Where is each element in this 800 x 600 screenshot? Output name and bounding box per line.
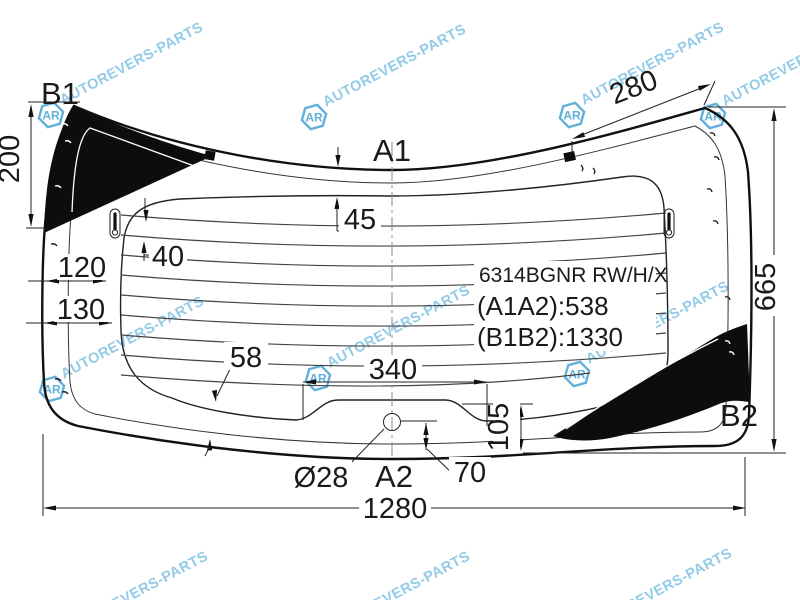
ar-logo-letters: AR	[563, 109, 581, 123]
watermark-text: AUTOREVERS-PARTS	[320, 21, 469, 110]
watermark-text: AUTOREVERS-PARTS	[719, 20, 800, 109]
marker-square-left	[204, 150, 215, 161]
technical-drawing-page: ARAUTOREVERS-PARTSARAUTOREVERS-PARTSARAU…	[0, 0, 800, 600]
dim-45: 45	[344, 204, 376, 236]
dist-b1b2: (B1B2):1330	[477, 322, 623, 352]
ref-a2-label: A2	[375, 459, 413, 494]
rear-glass-diagram: ARAUTOREVERS-PARTSARAUTOREVERS-PARTSARAU…	[0, 0, 800, 600]
dim-105: 105	[483, 403, 515, 451]
ref-b1-label: B1	[41, 76, 79, 111]
ar-logo-letters: AR	[305, 111, 323, 125]
dim-665: 665	[750, 263, 782, 311]
defroster-line	[121, 373, 590, 386]
dim-340: 340	[369, 354, 417, 386]
dim-diameter-28: Ø28	[294, 462, 349, 494]
defroster-line	[121, 213, 666, 226]
watermark-text: AUTOREVERS-PARTS	[324, 548, 473, 600]
dim-200: 200	[0, 135, 26, 183]
dim-70: 70	[454, 457, 486, 489]
watermark-text: AUTOREVERS-PARTS	[57, 19, 206, 108]
dim-1280: 1280	[363, 493, 428, 525]
defroster-line	[121, 233, 666, 246]
dim-130: 130	[57, 294, 105, 326]
dim-40: 40	[152, 241, 184, 273]
tinted-corner-top-left	[44, 106, 212, 233]
dist-a1a2: (A1A2):538	[477, 291, 609, 321]
part-code: 6314BGNR RW/H/X	[479, 264, 668, 287]
ref-a1-label: A1	[373, 133, 411, 168]
watermark-text: AUTOREVERS-PARTS	[586, 545, 735, 600]
heater-terminal-left	[110, 209, 120, 238]
dim-120: 120	[58, 252, 106, 284]
dim-58: 58	[230, 342, 262, 374]
ref-b2-label: B2	[720, 398, 758, 433]
watermark-text: AUTOREVERS-PARTS	[62, 548, 211, 600]
marker-square-right	[563, 151, 576, 162]
